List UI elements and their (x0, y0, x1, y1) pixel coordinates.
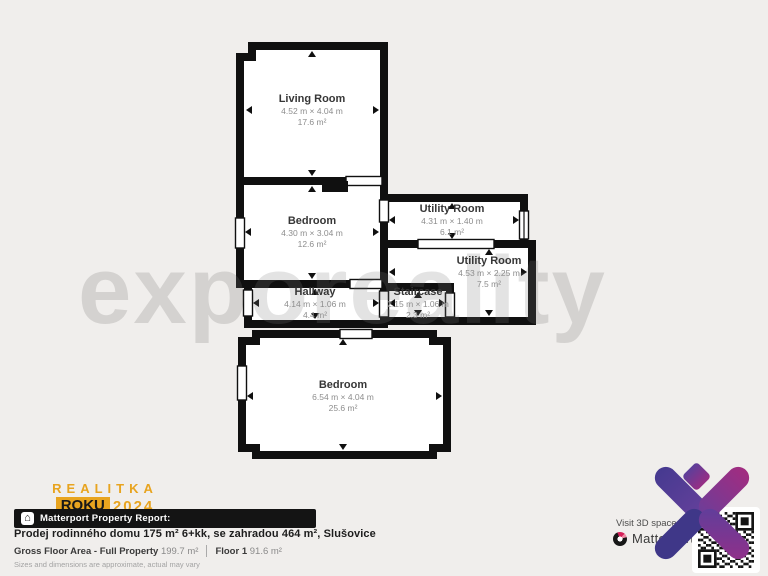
stat-value: 199.7 m² (161, 546, 199, 557)
wall-bump (322, 181, 348, 192)
visit-3d-text: Visit 3D space at (616, 518, 687, 529)
matterport-wordmark: Matterport (632, 531, 694, 546)
stat-gross-floor-area: Gross Floor Area - Full Property 199.7 m… (14, 546, 198, 557)
matterport-report-badge: ⌂ Matterport Property Report: (14, 509, 316, 528)
room-living-room-walls (240, 46, 384, 181)
door-utility-top-left (380, 200, 389, 222)
award-realitka: REALITKA (36, 481, 174, 496)
room-utility-top-walls (384, 198, 524, 244)
door-living-bedroom (346, 177, 382, 186)
stats-row: Gross Floor Area - Full Property 199.7 m… (14, 545, 282, 557)
stat-floor-1: Floor 1 91.6 m² (215, 546, 282, 557)
door-hallway-bedroom2 (340, 330, 372, 339)
room-bedroom-1-walls (240, 181, 384, 284)
stat-divider (206, 545, 207, 557)
door-bedroom-hallway (350, 280, 382, 289)
window-bedroom1-left (236, 218, 245, 248)
window-bedroom2-left (238, 366, 247, 400)
building-icon: ⌂ (21, 512, 34, 525)
room-bedroom-2-walls (242, 334, 447, 455)
badge-label: Matterport Property Report: (40, 513, 171, 524)
door-hallway-left (244, 290, 253, 316)
stat-value: 91.6 m² (250, 546, 282, 557)
stat-label: Floor 1 (215, 546, 247, 557)
matterport-icon (613, 532, 627, 546)
opening-utility-utility (418, 240, 494, 249)
disclaimer: Sizes and dimensions are approximate, ac… (14, 560, 200, 569)
stat-label: Gross Floor Area - Full Property (14, 546, 158, 557)
listing-title: Prodej rodinného domu 175 m² 6+kk, se za… (14, 528, 376, 540)
qr-code (692, 507, 760, 573)
door-staircase-utility (446, 293, 455, 317)
matterport-logo: Matterport (613, 531, 694, 546)
room-hallway-walls (248, 284, 384, 324)
door-hallway-staircase (380, 291, 389, 317)
